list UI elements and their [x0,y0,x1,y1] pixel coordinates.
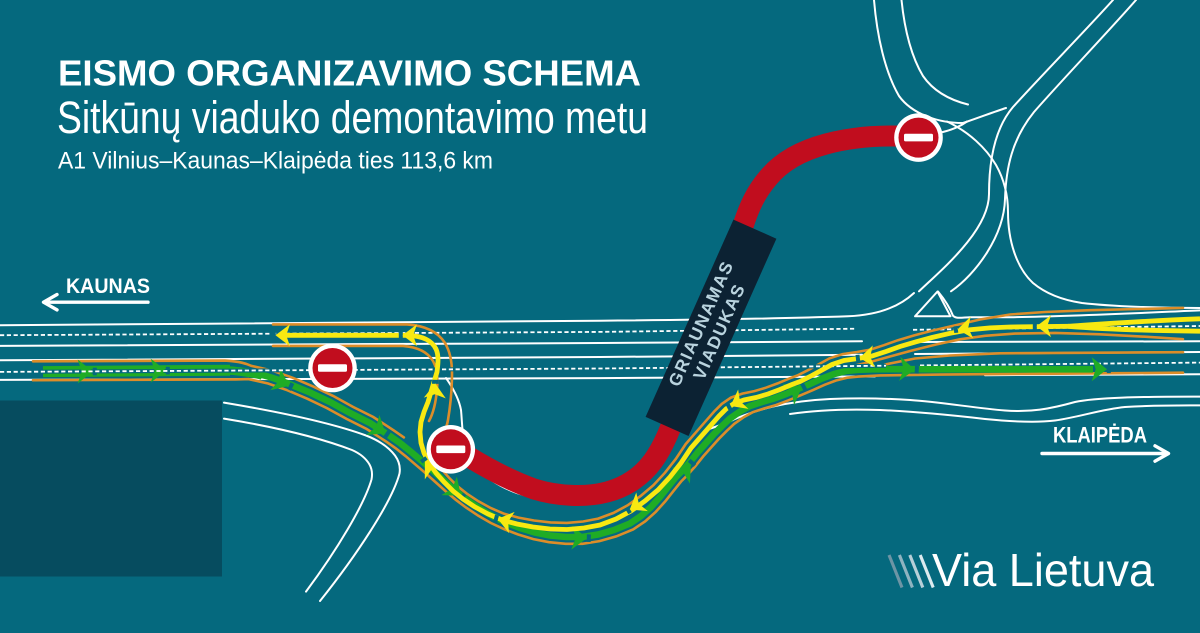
svg-text:Via Lietuva: Via Lietuva [932,544,1154,596]
svg-text:Sitkūnų viaduko demontavimo me: Sitkūnų viaduko demontavimo metu [57,92,648,143]
svg-text:EISMO ORGANIZAVIMO SCHEMA: EISMO ORGANIZAVIMO SCHEMA [58,53,641,94]
svg-text:KLAIPĖDA: KLAIPĖDA [1053,423,1147,448]
svg-text:A1 Vilnius–Kaunas–Klaipėda tie: A1 Vilnius–Kaunas–Klaipėda ties 113,6 km [58,148,493,175]
svg-text:KAUNAS: KAUNAS [66,274,150,298]
